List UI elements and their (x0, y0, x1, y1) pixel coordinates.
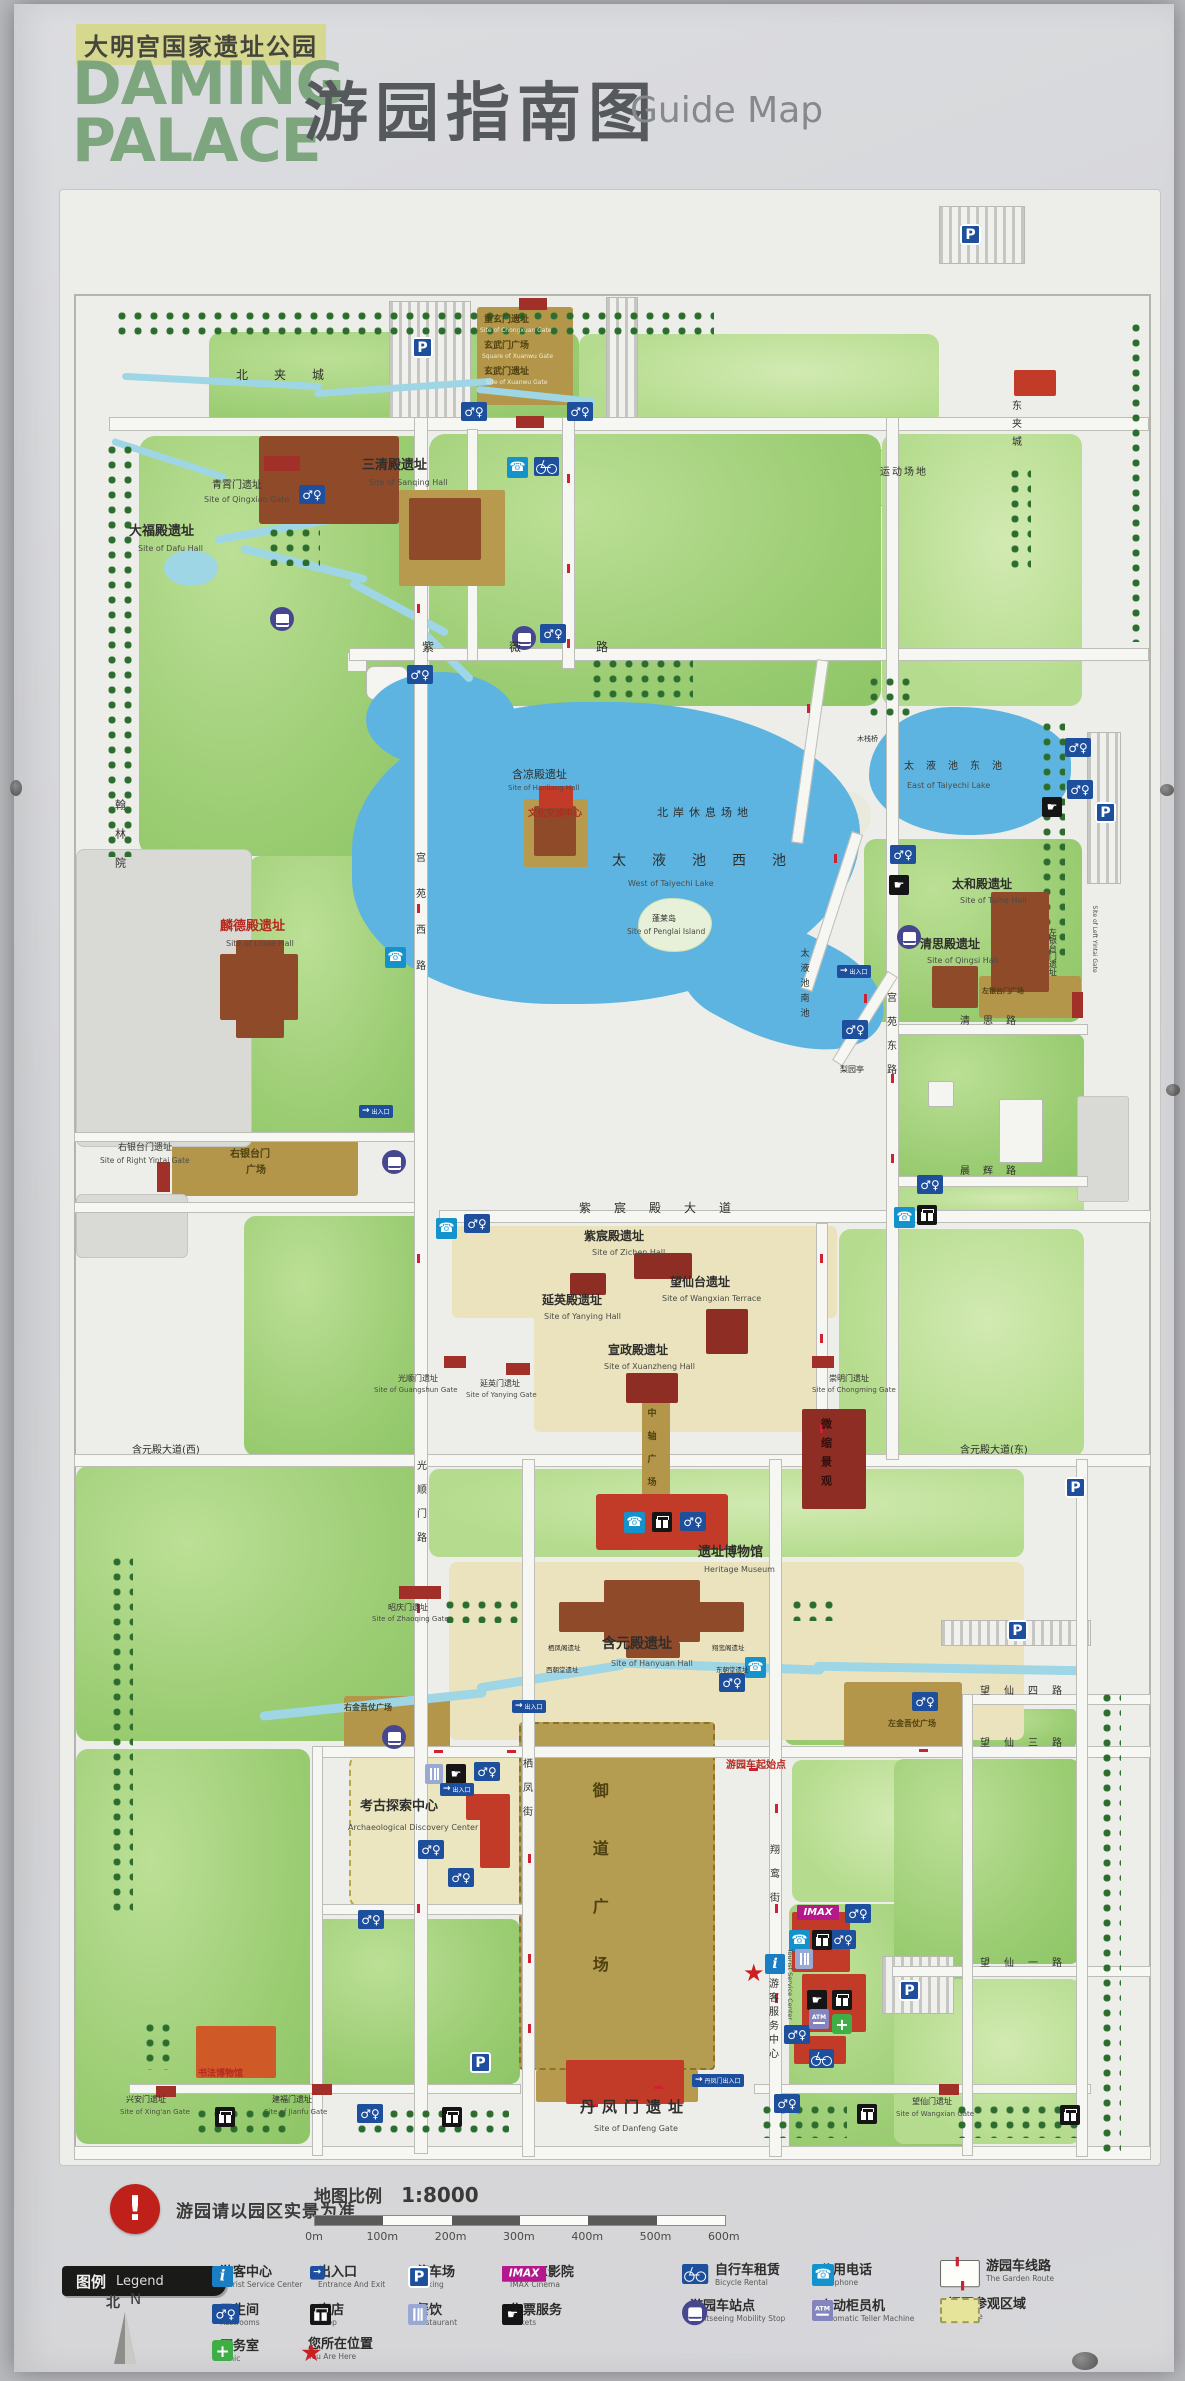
garden-route-mark (417, 604, 420, 613)
map-label: Site of Taihe Hall (960, 897, 1027, 905)
map-label: 望仙三路 (980, 1739, 1076, 1750)
map-label: 左金吾仗广场 (888, 1720, 936, 1728)
scale-segment (520, 2216, 588, 2225)
p-icon: P (470, 2052, 491, 2073)
map-label: 太液池西池 (612, 854, 812, 869)
map-label: Site of Zichen Hall (592, 1249, 665, 1257)
map-label: 晨辉路 (960, 1167, 1029, 1178)
bolt-icon (1160, 784, 1174, 796)
bus-icon (270, 607, 294, 631)
garden-route-mark (434, 1750, 443, 1753)
shop-icon (812, 1930, 832, 1950)
map-label: East of Taiyechi Lake (907, 782, 990, 790)
p-icon: P (899, 1980, 920, 2001)
garden-route-mark (807, 704, 810, 713)
tel-icon: ☎ (507, 457, 528, 478)
map-area-tr (142, 2020, 174, 2070)
map-area-road (74, 1132, 426, 1142)
scale-segment (452, 2216, 520, 2225)
wc-icon: ♂♀ (1065, 738, 1091, 757)
map-label: 兴安门遗址 (126, 2096, 166, 2104)
map-area-road (74, 1202, 426, 1213)
p-icon: P (960, 224, 981, 245)
garden-route-mark (820, 1254, 823, 1263)
map-label: 延英门遗址 (480, 1380, 520, 1388)
map-label: 东夹城 (1009, 400, 1020, 454)
wc-icon: ♂♀ (357, 2104, 383, 2123)
map-label: 栖凤街 (520, 1758, 531, 1830)
wc-icon: ♂♀ (845, 1904, 871, 1923)
garden-route-mark (528, 1854, 531, 1863)
bus-icon (897, 925, 921, 949)
map-area-red (1014, 370, 1056, 396)
map-label: Site of Right Yintai Gate (100, 1157, 190, 1165)
map-label: 栖凤阁遗址 (548, 1645, 581, 1652)
map-label: Site of Xuanwu Gate (486, 380, 548, 386)
map-area-wall (74, 294, 1151, 2156)
map-label: 紫宸殿遗址 (584, 1230, 644, 1243)
wc-icon: ♂♀ (680, 1512, 706, 1531)
map-label: 望仙台遗址 (670, 1276, 730, 1289)
map-area-tr (866, 674, 916, 722)
info-icon: i (765, 1954, 785, 1974)
bike-icon (534, 457, 559, 476)
exclamation-icon: ! (110, 2184, 160, 2234)
map-area-road (1076, 1459, 1088, 2157)
map-area-tr (589, 656, 693, 702)
map-label: 右银台门 (230, 1150, 270, 1161)
scale-label: 地图比例 (314, 2187, 382, 2207)
map-area-gate (519, 298, 547, 310)
garden-route-mark (864, 994, 867, 1003)
map-area-tr (442, 1597, 520, 1623)
shop-icon (1060, 2105, 1080, 2125)
map-area-road (109, 417, 1149, 431)
map-label: 太液池东池 (904, 762, 1014, 773)
map-label: 运动场地 (880, 468, 928, 479)
map-label: 光顺门路 (414, 1460, 425, 1556)
map-label: 大福殿遗址 (129, 525, 194, 539)
map-area-gate (444, 1356, 466, 1368)
map-label: 建福门遗址 (272, 2096, 312, 2104)
wc-icon: ♂♀ (912, 1692, 938, 1711)
map-area-hall (282, 954, 298, 1020)
map-label: West of Taiyechi Lake (628, 880, 714, 888)
wc-icon: ♂♀ (842, 1020, 868, 1039)
map-label: 中轴广场 (645, 1408, 654, 1500)
map-area-gate (264, 456, 300, 471)
p-icon: P (1007, 1620, 1028, 1641)
map-label: Heritage Museum (704, 1566, 775, 1574)
map-label: 翔鸾街 (767, 1844, 778, 1916)
wc-icon: ♂♀ (358, 1910, 384, 1929)
map-label: Archaeological Discovery Center (348, 1824, 478, 1832)
shop-icon (832, 1990, 852, 2010)
map-area-gate (939, 2084, 959, 2095)
map-area-hall (991, 892, 1049, 992)
map-area-darkred (706, 1309, 748, 1354)
map-label: Site of Hanyuan Hall (611, 1660, 693, 1668)
wc-icon: ♂♀ (719, 1673, 745, 1692)
bolt-icon (1072, 2352, 1098, 2370)
map-label: 太液池南池 (798, 948, 807, 1023)
map-area-hall (604, 1580, 700, 1642)
map-label: Site of Wangxian Gate (896, 2111, 974, 2118)
map-area-road (962, 1694, 973, 2156)
entr-icon: →丹凤门出入口 (692, 2074, 744, 2087)
tick-icon: ☛ (446, 1764, 466, 1784)
map-label: 北岸休息场地 (657, 807, 753, 819)
map-label: 含凉殿遗址 (512, 769, 567, 781)
map-area-hall (236, 940, 284, 1038)
map-label: 御道广场 (590, 1782, 607, 2014)
map-area-hall (698, 1602, 744, 1632)
shop-icon (442, 2107, 462, 2127)
map-label: Site of Qingsi Hall (927, 957, 998, 965)
map-label: Site of Xing'an Gate (120, 2109, 190, 2116)
scale-tick: 300m (503, 2230, 535, 2243)
wc-icon: ♂♀ (464, 1214, 490, 1233)
wc-icon: ♂♀ (407, 665, 433, 684)
map-label: 宫苑东路 (884, 992, 895, 1088)
map-label: Site of Sanqing Hall (369, 479, 448, 487)
guide-map-sign: 大明宫国家遗址公园 DAMINGPALACE NATIONAL HERITAGE… (14, 4, 1174, 2372)
map-area-tr (104, 442, 134, 857)
map-label: Site of Penglai Island (627, 928, 705, 936)
map-area-tr (1099, 1690, 1121, 2158)
map-area-hall (409, 498, 481, 560)
garden-route-mark (567, 564, 570, 573)
map-label: 望仙四路 (980, 1687, 1076, 1698)
entr-icon: →出入口 (440, 1783, 474, 1796)
map-area-hall (220, 954, 238, 1020)
wc-icon: ♂♀ (917, 1175, 943, 1194)
scale-segment (315, 2216, 383, 2225)
map-label: 昭庆门遗址 (388, 1604, 428, 1612)
garden-route-mark (567, 474, 570, 483)
garden-route-mark (919, 1749, 928, 1752)
bolt-icon (10, 780, 22, 796)
map-area-gate (812, 1356, 834, 1368)
map-area-tr (109, 1554, 133, 1912)
map-label: 玄武门遗址 (484, 368, 529, 377)
wc-icon: ♂♀ (784, 2025, 810, 2044)
map-area-tr (759, 2102, 847, 2138)
wc-icon: ♂♀ (474, 1762, 500, 1781)
map-label: 延英殿遗址 (542, 1294, 602, 1307)
scale-tick: 600m (708, 2230, 740, 2243)
garden-route-mark (417, 1254, 420, 1263)
map-label: Site of Guangshun Gate (374, 1387, 458, 1394)
tick-icon: ☛ (1042, 797, 1062, 817)
map-label: 书法博物馆 (198, 2070, 243, 2079)
shop-icon (917, 1205, 937, 1225)
garden-route-mark (891, 1154, 894, 1163)
map-label: 清思路 (960, 1017, 1029, 1028)
scale-tick: 0m (305, 2230, 323, 2243)
map-label: 宣政殿遗址 (608, 1344, 668, 1357)
scale-tick: 200m (435, 2230, 467, 2243)
bike-icon (809, 2049, 834, 2068)
scale-ticks: 0m100m200m300m400m500m600m (314, 2230, 744, 2246)
map-area-gate (516, 416, 544, 428)
tel-icon: ☎ (894, 1207, 915, 1228)
wc-icon: ♂♀ (830, 1930, 856, 1949)
map-label: 广场 (246, 1166, 266, 1177)
tel-icon: ☎ (624, 1512, 645, 1533)
map-area-gate (399, 1586, 441, 1599)
map-area-hall (559, 1602, 605, 1632)
park-map: ♂♀♂♀♂♀♂♀♂♀♂♀♂♀♂♀♂♀♂♀♂♀♂♀♂♀♂♀♂♀♂♀♂♀♂♀♂♀♂♀… (14, 4, 1185, 2381)
map-label: 崇明门遗址 (829, 1375, 869, 1383)
scale-ratio: 1:8000 (401, 2183, 479, 2207)
entr-icon: →出入口 (837, 965, 871, 978)
map-label: 木栈桥 (857, 736, 878, 743)
map-label: Site of Zhaoqing Gate (372, 1616, 449, 1623)
wc-icon: ♂♀ (1067, 780, 1093, 799)
map-label: 含元殿大道(西) (132, 1446, 200, 1457)
map-area-gate (312, 2084, 332, 2095)
bus-icon (382, 1150, 406, 1174)
map-label: 望仙一路 (980, 1959, 1076, 1970)
map-label: Site of Yanying Gate (466, 1392, 537, 1399)
scale-bar: 地图比例 1:8000 0m100m200m300m400m500m600m (314, 2182, 744, 2246)
map-label: Site of Danfeng Gate (594, 2125, 678, 2133)
scale-segment (588, 2216, 656, 2225)
map-area-tr (1007, 466, 1031, 571)
map-label: 丹凤门遗址 (580, 2100, 690, 2116)
map-area-tr (789, 1597, 837, 1621)
wc-icon: ♂♀ (461, 402, 487, 421)
map-area-hall (932, 966, 978, 1008)
star-icon: ★ (743, 1959, 765, 1987)
scale-segment (383, 2216, 451, 2225)
tick-icon: ☛ (889, 875, 909, 895)
food-icon (795, 1949, 813, 1969)
map-area-road (74, 2146, 1151, 2160)
garden-route-mark (528, 2024, 531, 2033)
shop-icon (857, 2104, 877, 2124)
map-area-tr (114, 308, 714, 336)
scale-segment (657, 2216, 725, 2225)
map-label: 右金吾仗广场 (344, 1704, 392, 1712)
bus-icon (382, 1725, 406, 1749)
map-label: Site of Chongming Gate (812, 1387, 896, 1394)
map-label: Site of Chongxuan Gate (480, 328, 552, 334)
map-label: Site of Jianfu Gate (264, 2109, 327, 2116)
map-label: Tourist Service Center (786, 1949, 793, 2020)
garden-route-mark (654, 2086, 663, 2089)
map-area-gate (1072, 992, 1083, 1018)
map-label: 三清殿遗址 (362, 459, 427, 473)
map-label: 游园车起始点 (726, 1761, 786, 1772)
map-label: 右银台门遗址 (118, 1144, 172, 1153)
map-label: 梨园亭 (840, 1066, 864, 1074)
map-label: Site of Qingxiao Gate (204, 496, 289, 504)
map-label: 宫苑西路 (413, 852, 424, 996)
garden-route-mark (528, 1954, 531, 1963)
map-label: Site of Dafu Hall (138, 545, 203, 553)
wc-icon: ♂♀ (567, 402, 593, 421)
garden-route-mark (834, 854, 837, 863)
shop-icon (652, 1512, 672, 1532)
map-area-gate (506, 1363, 530, 1375)
map-label: 紫宸殿大道 (579, 1202, 754, 1215)
garden-route-mark (820, 1334, 823, 1343)
p-icon: P (1095, 802, 1116, 823)
map-label: Site of Left Yintai Gate (1090, 906, 1096, 973)
map-area-darkred (570, 1273, 606, 1295)
map-area-darkred (802, 1409, 866, 1509)
map-label: Site of Linde Hall (226, 940, 294, 948)
map-area-road (439, 1210, 1151, 1223)
map-label: 含元殿大道(东) (960, 1446, 1028, 1457)
shop-icon (215, 2107, 235, 2127)
map-label: 北夹城 (236, 369, 350, 382)
tel-icon: ☎ (385, 947, 406, 968)
map-area-tr (1128, 320, 1146, 642)
map-label: 左银台门遗址 (1048, 928, 1056, 976)
map-label: 左银台门广场 (982, 988, 1024, 995)
p-icon: P (412, 337, 433, 358)
p-icon: P (1065, 1477, 1086, 1498)
map-label: 东朝堂遗址 (716, 1667, 749, 1674)
map-label: 望仙门遗址 (912, 2098, 952, 2106)
clinic-icon: + (832, 2014, 852, 2034)
wc-icon: ♂♀ (448, 1868, 474, 1887)
map-label: 文化交流中心 (528, 810, 582, 819)
map-label: 翰林院 (114, 799, 126, 886)
map-label: 紫薇路 (422, 641, 683, 654)
entr-icon: →出入口 (512, 1700, 546, 1713)
map-area-red (480, 1814, 510, 1868)
map-area-darkred (626, 1373, 678, 1403)
map-label: 遗址博物馆 (698, 1546, 763, 1560)
scale-tick: 400m (571, 2230, 603, 2243)
map-label: Site of Wangxian Terrace (662, 1295, 761, 1303)
map-label: Square of Xuanwu Gate (482, 354, 553, 360)
map-area-plot (939, 206, 1025, 264)
map-label: 清思殿遗址 (920, 938, 980, 951)
wc-icon: ♂♀ (890, 845, 916, 864)
map-label: 翔鸾阁遗址 (712, 1645, 745, 1652)
tick-icon: ☛ (807, 1990, 827, 2010)
map-label: 微缩景观 (820, 1418, 832, 1494)
map-label: 光顺门遗址 (398, 1375, 438, 1383)
map-label: 游客服务中心 (766, 1978, 777, 2062)
map-label: 麟德殿遗址 (220, 920, 285, 934)
garden-route-mark (507, 1750, 516, 1753)
garden-route-mark (417, 1904, 420, 1913)
map-label: 玄武门广场 (484, 342, 529, 351)
map-label: 太和殿遗址 (952, 878, 1012, 891)
scale-tick: 100m (366, 2230, 398, 2243)
scale-segments (314, 2215, 726, 2226)
wc-icon: ♂♀ (774, 2094, 800, 2113)
map-label: Site of Hanliang Hall (508, 785, 579, 792)
wc-icon: ♂♀ (418, 1840, 444, 1859)
scale-tick: 500m (640, 2230, 672, 2243)
map-label: Site of Yanying Hall (544, 1313, 621, 1321)
entr-icon: →出入口 (359, 1105, 393, 1118)
map-label: 青霄门遗址 (212, 481, 262, 492)
wc-icon: ♂♀ (299, 485, 325, 504)
map-area-gate (157, 1162, 170, 1192)
tel-icon: ☎ (436, 1218, 457, 1239)
garden-route-mark (775, 1804, 778, 1813)
map-label: 重玄门遗址 (484, 316, 529, 325)
bolt-icon (1166, 1084, 1180, 1096)
map-label: Site of Xuanzheng Hall (604, 1363, 695, 1371)
atm-icon: ATM (809, 2009, 829, 2029)
imax-icon: IMAX (797, 1905, 839, 1920)
food-icon (425, 1764, 443, 1784)
map-label: 蓬莱岛 (652, 915, 676, 923)
map-label: 考古探索中心 (360, 1800, 438, 1814)
map-label: 西朝堂遗址 (546, 1667, 579, 1674)
map-label: 含元殿遗址 (602, 1637, 672, 1652)
